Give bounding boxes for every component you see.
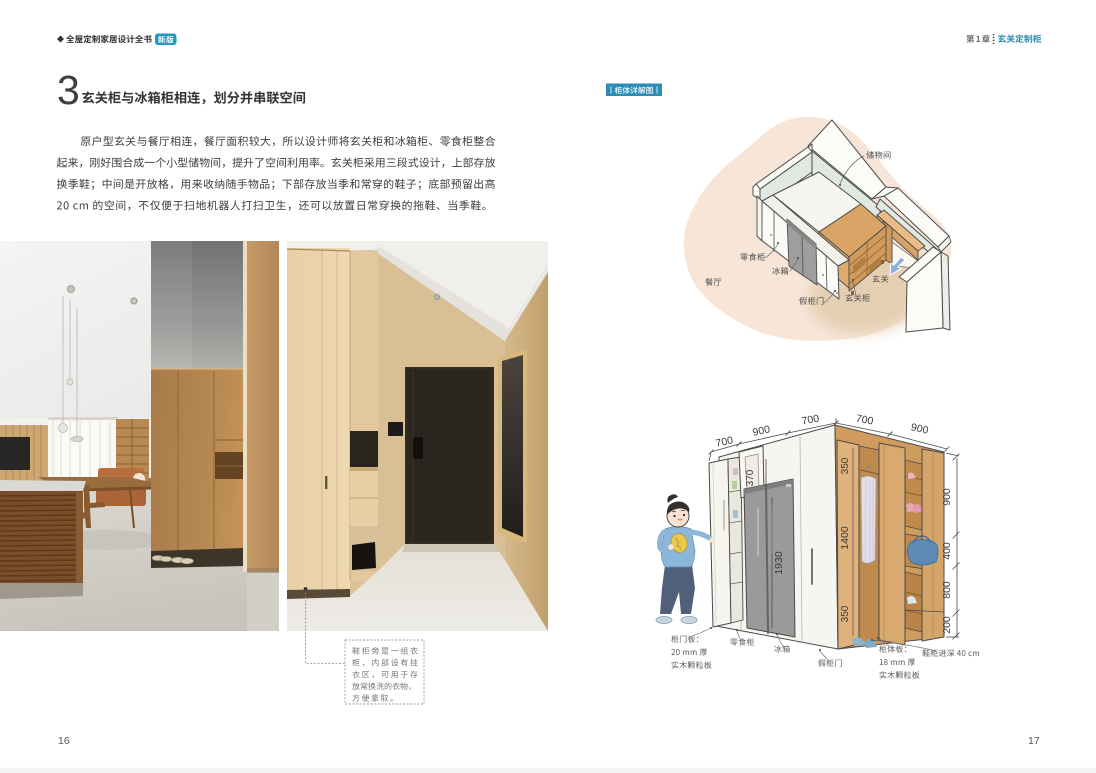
svg-text:700: 700 — [715, 434, 735, 449]
svg-text:900: 900 — [941, 488, 953, 506]
svg-text:700: 700 — [855, 412, 875, 427]
svg-text:17: 17 — [1028, 735, 1040, 747]
svg-text:900: 900 — [910, 421, 930, 436]
svg-text:350: 350 — [840, 457, 851, 474]
svg-text:16: 16 — [58, 735, 70, 747]
svg-text:800: 800 — [941, 581, 953, 599]
svg-text:370: 370 — [745, 469, 756, 486]
svg-text:700: 700 — [801, 412, 821, 427]
svg-text:350: 350 — [840, 605, 851, 622]
svg-text:900: 900 — [752, 423, 772, 438]
svg-text:3: 3 — [57, 67, 80, 113]
svg-text:1400: 1400 — [839, 526, 851, 550]
svg-text:400: 400 — [941, 542, 953, 560]
svg-text:200: 200 — [941, 616, 953, 634]
svg-text:1930: 1930 — [773, 551, 785, 575]
